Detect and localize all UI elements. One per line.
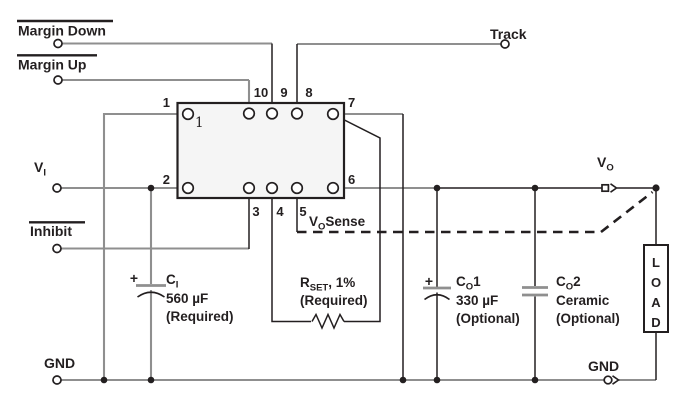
cin-plus-sign: + bbox=[130, 270, 138, 286]
wires bbox=[57, 44, 656, 381]
pin-6-circle bbox=[328, 183, 339, 194]
pin-3-circle bbox=[244, 183, 255, 194]
load-letter-o: O bbox=[651, 275, 661, 290]
junction-load-vout bbox=[652, 184, 659, 191]
cin-value-label: 560 µF bbox=[166, 291, 208, 306]
pin-label-5: 5 bbox=[299, 204, 306, 219]
junction-cin-gnd bbox=[148, 377, 155, 384]
pin-label-9: 9 bbox=[280, 85, 287, 100]
pin1-marker: 1 bbox=[195, 115, 204, 131]
gnd-left-label: GND bbox=[44, 355, 75, 371]
load-letter-a: A bbox=[651, 295, 661, 310]
inhibit-label: Inhibit bbox=[30, 223, 72, 239]
junction-pin7-gnd bbox=[400, 377, 407, 384]
gnd-right-terminal bbox=[604, 376, 612, 384]
vout-label: VO bbox=[597, 154, 614, 174]
vout-terminal-arrow-icon bbox=[611, 184, 617, 192]
schematic-page: 1 L O A D bbox=[0, 0, 700, 401]
cout1-value-label: 330 µF bbox=[456, 293, 498, 308]
vin-label: VI bbox=[34, 159, 46, 179]
application-circuit-diagram: 1 L O A D bbox=[0, 0, 700, 401]
margin-up-terminal bbox=[54, 76, 62, 84]
pin-label-3: 3 bbox=[252, 204, 259, 219]
cin-note-label: (Required) bbox=[166, 309, 234, 324]
load-letter-d: D bbox=[651, 315, 660, 330]
vin-terminal bbox=[53, 184, 61, 192]
margin-down-terminal bbox=[54, 40, 62, 48]
load-symbol: L O A D bbox=[644, 245, 668, 332]
pin-label-8: 8 bbox=[305, 85, 312, 100]
pin-2-circle bbox=[183, 183, 194, 194]
rset-ref-label: RSET, 1% bbox=[300, 275, 355, 294]
cin-ref-label: CI bbox=[166, 272, 178, 291]
gnd-left-terminal bbox=[53, 376, 61, 384]
cout1-note-label: (Optional) bbox=[456, 311, 520, 326]
gnd-terminal-arrow-icon bbox=[613, 376, 619, 384]
pin-label-1: 1 bbox=[163, 95, 170, 110]
pin-label-7: 7 bbox=[348, 95, 355, 110]
vout-terminal-square bbox=[602, 185, 608, 191]
junction-cin-vin bbox=[148, 185, 155, 192]
pin-4-circle bbox=[267, 183, 278, 194]
inhibit-terminal bbox=[53, 245, 61, 253]
pin-8-circle bbox=[292, 108, 303, 119]
rset-resistor-zigzag bbox=[312, 315, 344, 329]
power-module: 1 bbox=[178, 103, 345, 198]
track-label: Track bbox=[490, 26, 527, 42]
margin-down-label: Margin Down bbox=[18, 23, 106, 39]
cout2-ref-label: CO2 bbox=[556, 274, 581, 293]
gnd-right-label: GND bbox=[588, 358, 619, 374]
junction-pin1-gnd bbox=[101, 377, 108, 384]
terminals bbox=[53, 40, 619, 385]
load-letter-l: L bbox=[652, 255, 660, 270]
pin-label-4: 4 bbox=[276, 204, 284, 219]
vo-sense-label: VOSense bbox=[309, 214, 366, 233]
cout1-ref-label: CO1 bbox=[456, 274, 481, 293]
vo-sense-dashed-diagonal bbox=[601, 192, 653, 232]
pin-1-circle bbox=[183, 109, 194, 120]
pin-label-6: 6 bbox=[348, 172, 355, 187]
pin-5-circle bbox=[292, 183, 303, 194]
cout1-plus-sign: + bbox=[425, 273, 433, 289]
rset-note-label: (Required) bbox=[300, 293, 368, 308]
cout2-value-label: Ceramic bbox=[556, 293, 610, 308]
junction-cout2-gnd bbox=[532, 377, 539, 384]
cout2-capacitor-symbol bbox=[522, 288, 548, 296]
component-labels: + CI 560 µF (Required) RSET, 1% (Require… bbox=[130, 270, 620, 326]
pin-10-circle bbox=[244, 108, 255, 119]
pin-9-circle bbox=[267, 108, 278, 119]
cout2-note-label: (Optional) bbox=[556, 311, 620, 326]
pin-7-circle bbox=[328, 109, 339, 120]
junction-cout1-vout bbox=[434, 185, 441, 192]
junction-cout1-gnd bbox=[434, 377, 441, 384]
margin-up-label: Margin Up bbox=[18, 57, 86, 73]
pin1-to-gnd-wire bbox=[104, 114, 177, 380]
pin-label-10: 10 bbox=[254, 85, 268, 100]
junction-cout2-vout bbox=[532, 185, 539, 192]
pin-label-2: 2 bbox=[163, 172, 170, 187]
